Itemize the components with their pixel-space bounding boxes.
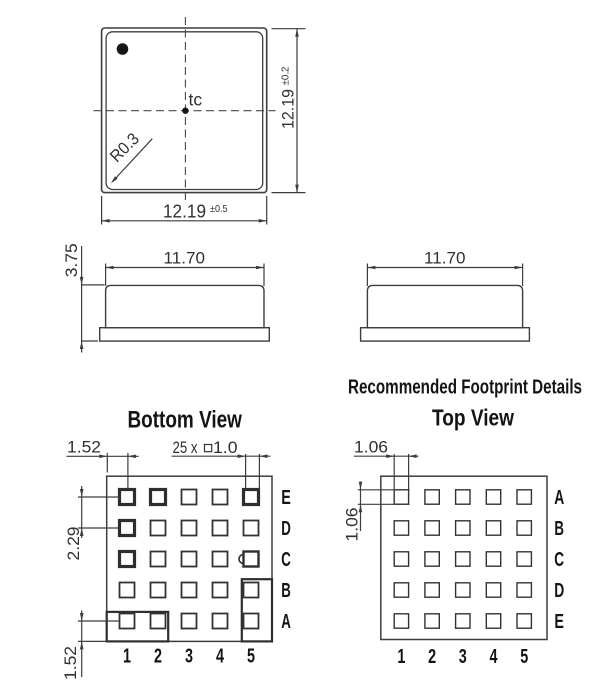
svg-text:5: 5 <box>247 646 255 668</box>
svg-text:±0.5: ±0.5 <box>210 203 228 215</box>
svg-text:4: 4 <box>216 646 225 668</box>
svg-text:B: B <box>281 580 291 602</box>
svg-text:3.75: 3.75 <box>62 243 81 277</box>
svg-text:1.52: 1.52 <box>67 438 101 457</box>
svg-text:Bottom View: Bottom View <box>127 407 242 434</box>
svg-text:tc: tc <box>189 90 203 110</box>
svg-text:E: E <box>554 611 564 633</box>
svg-text:11.70: 11.70 <box>164 248 206 267</box>
svg-text:5: 5 <box>520 646 528 668</box>
svg-text:1.06: 1.06 <box>343 508 362 542</box>
svg-text:2: 2 <box>154 646 162 668</box>
svg-text:25 x: 25 x <box>173 439 199 457</box>
svg-text:1.06: 1.06 <box>354 437 388 456</box>
svg-text:±0.2: ±0.2 <box>280 66 292 85</box>
svg-text:1.52: 1.52 <box>61 646 80 680</box>
svg-text:11.70: 11.70 <box>424 248 466 267</box>
svg-text:E: E <box>281 487 291 509</box>
svg-text:A: A <box>281 611 291 633</box>
svg-text:Recommended Footprint Details: Recommended Footprint Details <box>348 377 582 399</box>
svg-text:A: A <box>554 487 564 509</box>
svg-text:B: B <box>554 518 564 540</box>
svg-text:2.29: 2.29 <box>64 527 83 561</box>
svg-text:3: 3 <box>459 646 467 668</box>
svg-text:D: D <box>554 580 564 602</box>
svg-text:2: 2 <box>428 646 436 668</box>
svg-text:12.19: 12.19 <box>279 89 298 129</box>
svg-text:C: C <box>281 549 291 571</box>
svg-text:C: C <box>554 549 564 571</box>
svg-text:4: 4 <box>490 646 499 668</box>
svg-text:D: D <box>281 518 291 540</box>
svg-text:1: 1 <box>397 646 405 668</box>
svg-text:1: 1 <box>123 646 131 668</box>
svg-text:12.19: 12.19 <box>163 201 206 221</box>
svg-text:Top View: Top View <box>432 405 515 431</box>
svg-text:1.0: 1.0 <box>213 439 238 457</box>
svg-text:3: 3 <box>185 646 193 668</box>
